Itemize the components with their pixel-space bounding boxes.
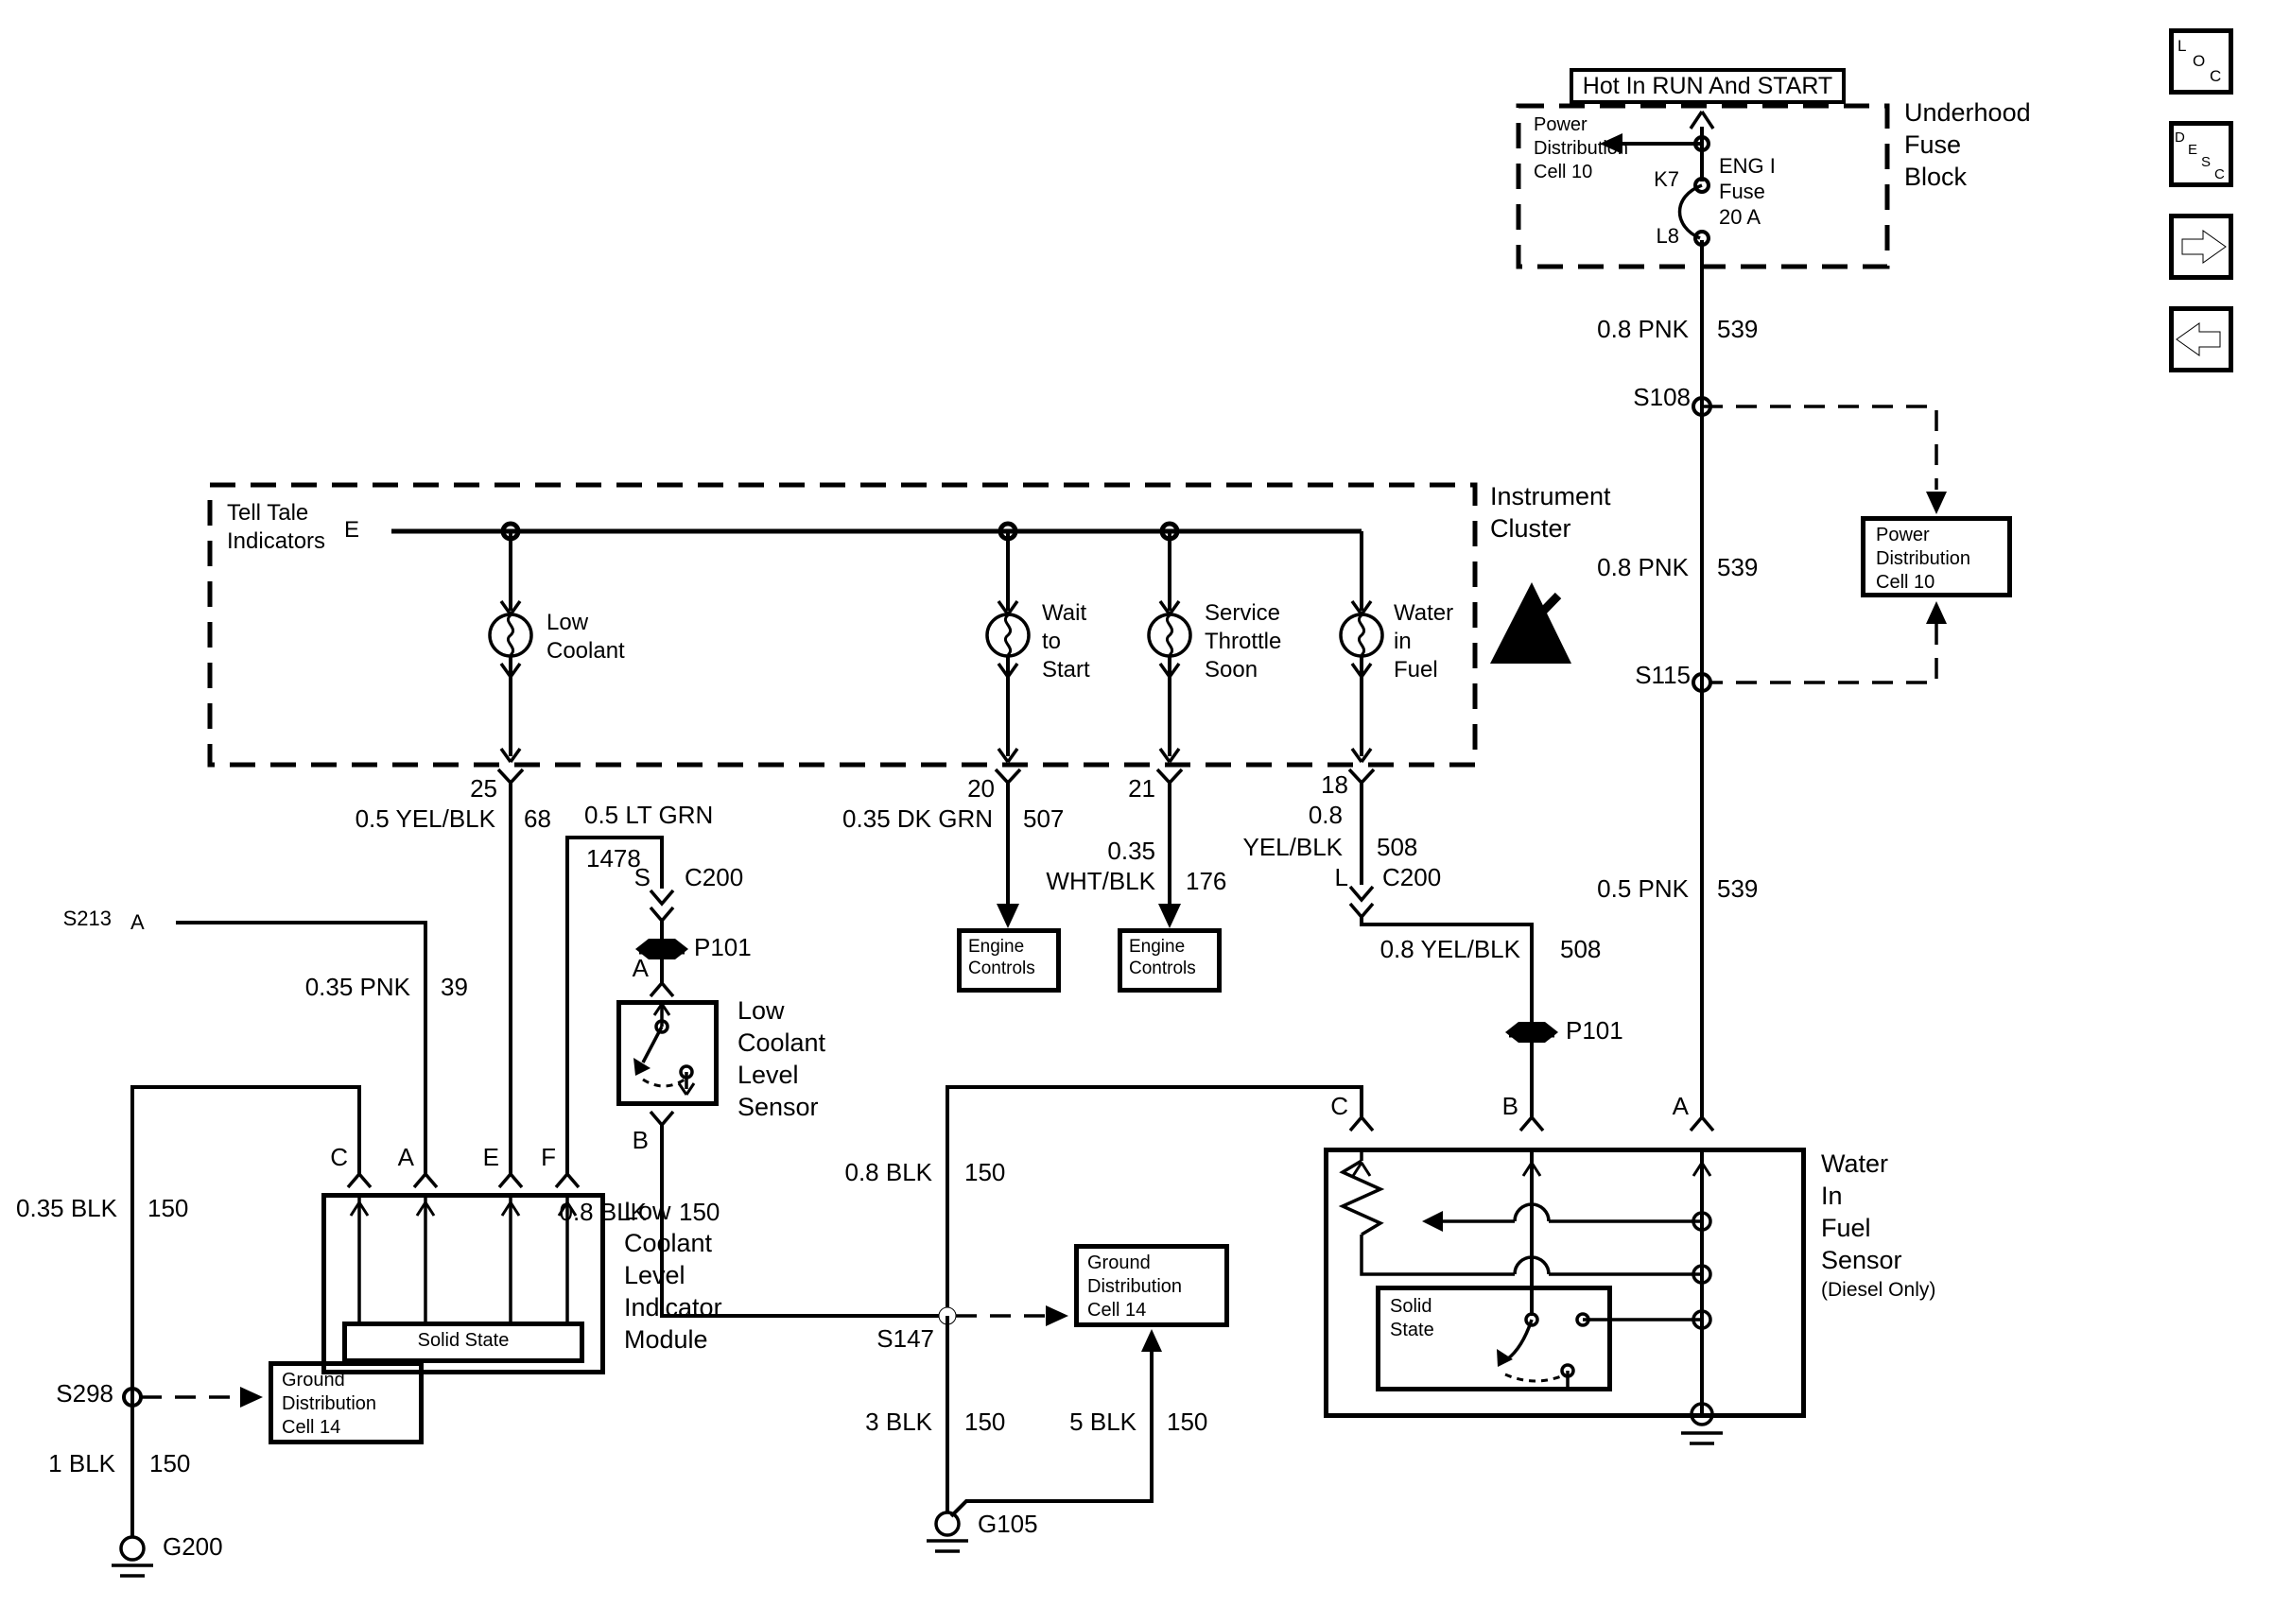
s213-gate-icon xyxy=(121,896,176,949)
wif-pin-a: A xyxy=(1673,1091,1689,1121)
wait-to-start-lamp-icon xyxy=(987,531,1029,783)
wire-150e-color: 3 BLK xyxy=(865,1407,932,1437)
loc-letter-o: O xyxy=(2193,53,2205,69)
wire-68-color: 0.5 YEL/BLK xyxy=(356,803,495,834)
splice-s298-label: S298 xyxy=(56,1378,113,1408)
wire-pnk-39 xyxy=(176,923,425,1174)
wire-508a-circuit: 508 xyxy=(1377,832,1417,862)
grommet-p101-b-label: P101 xyxy=(1566,1015,1623,1045)
fuse-terminal-l8: L8 xyxy=(1657,223,1679,249)
module-pin-e: E xyxy=(483,1142,499,1172)
splice-s147-dashed-link xyxy=(956,1305,1068,1326)
cluster-pin-18: 18 xyxy=(1321,769,1348,800)
service-throttle-soon-lamp-icon xyxy=(1149,531,1190,783)
grommet-p101-b-icon xyxy=(1505,1022,1558,1043)
module-solid-state-label: Solid State xyxy=(342,1329,584,1353)
lcl-sensor-pin-a: A xyxy=(633,953,649,983)
wire-508b-circuit: 508 xyxy=(1560,934,1601,964)
wire-21-wht-blk-176 xyxy=(1158,783,1181,928)
lcl-module-label: Low Coolant Level Indicator Module xyxy=(624,1195,722,1356)
power-distribution-cell10-label: Power Distribution Cell 10 xyxy=(1876,524,1970,595)
cluster-pin-21: 21 xyxy=(1128,773,1155,803)
water-in-fuel-lamp-icon xyxy=(1341,531,1382,783)
wire-176-circuit: 176 xyxy=(1186,866,1226,896)
wire-39-color: 0.35 PNK xyxy=(305,972,410,1002)
connector-c200l-pin: L xyxy=(1335,862,1348,892)
back-button[interactable] xyxy=(2169,306,2233,372)
ground-g105-label: G105 xyxy=(978,1509,1038,1539)
loc-letter-c: C xyxy=(2210,68,2221,84)
connector-c200s-name: C200 xyxy=(685,862,743,892)
connector-c200l-name: C200 xyxy=(1382,862,1441,892)
wire-150e-circuit: 150 xyxy=(964,1407,1005,1437)
wire-176-color2: WHT/BLK xyxy=(1046,866,1155,896)
splice-s147-label: S147 xyxy=(876,1323,934,1354)
wire-507-circuit: 507 xyxy=(1023,803,1064,834)
telltale-indicators-label: Tell Tale Indicators xyxy=(227,499,325,556)
wire-539c-color: 0.5 PNK xyxy=(1597,873,1689,904)
cluster-pin-25: 25 xyxy=(470,773,497,803)
grommet-p101-a-label: P101 xyxy=(694,932,752,962)
wire-508a-color1: 0.8 xyxy=(1309,800,1343,830)
wire-508a-color2: YEL/BLK xyxy=(1242,832,1343,862)
wire-539c-circuit: 539 xyxy=(1717,873,1758,904)
wire-1478-color: 0.5 LT GRN xyxy=(584,800,713,830)
wire-150c-circuit: 150 xyxy=(964,1157,1005,1187)
fuse-label: ENG I Fuse 20 A xyxy=(1719,153,1776,230)
splice-s108-dashed-link xyxy=(1702,406,1947,514)
cluster-pin-20: 20 xyxy=(967,773,995,803)
cluster-bus-wire xyxy=(391,524,1362,539)
wire-150d-circuit: 150 xyxy=(149,1448,190,1478)
low-coolant-lamp-label: Low Coolant xyxy=(547,609,625,665)
power-trunk-wire xyxy=(1693,240,1710,1117)
wif-pin-c: C xyxy=(1330,1091,1348,1121)
engine-controls-b-label: Engine Controls xyxy=(1129,936,1196,979)
ground-g105-icon xyxy=(927,1512,968,1551)
fuse-terminal-k7: K7 xyxy=(1654,166,1679,192)
wire-150a-color: 0.35 BLK xyxy=(16,1193,117,1223)
wire-507-color: 0.35 DK GRN xyxy=(842,803,993,834)
service-throttle-soon-lamp-label: Service Throttle Soon xyxy=(1205,599,1281,684)
desc-letter-s: S xyxy=(2201,155,2211,169)
ground-distribution-a-label: Ground Distribution Cell 14 xyxy=(282,1369,376,1440)
wif-sensor-label: Water In Fuel Sensor xyxy=(1821,1148,1902,1276)
esd-sensitive-icon xyxy=(1490,582,1571,664)
engine-controls-a-label: Engine Controls xyxy=(968,936,1035,979)
module-pin-f: F xyxy=(541,1142,556,1172)
wire-20-dk-grn-507 xyxy=(997,783,1019,928)
wait-to-start-lamp-label: Wait to Start xyxy=(1042,599,1090,684)
connector-c200s-pin: S xyxy=(634,862,651,892)
wif-sensor-sublabel: (Diesel Only) xyxy=(1821,1278,1935,1303)
instrument-cluster-outline xyxy=(210,485,1475,765)
forward-button[interactable] xyxy=(2169,214,2233,280)
desc-letter-c: C xyxy=(2214,167,2225,181)
telltale-gate-letter: E xyxy=(344,516,359,544)
water-in-fuel-lamp-label: Water in Fuel xyxy=(1394,599,1453,684)
wire-539a-circuit: 539 xyxy=(1717,314,1758,344)
ground-distribution-b-label: Ground Distribution Cell 14 xyxy=(1087,1252,1182,1322)
wire-39-circuit: 39 xyxy=(441,972,468,1002)
loc-letter-l: L xyxy=(2178,38,2186,54)
wire-508b-color: 0.8 YEL/BLK xyxy=(1380,934,1520,964)
wire-150f-circuit: 150 xyxy=(1167,1407,1207,1437)
ground-g200-label: G200 xyxy=(163,1531,223,1562)
wire-150d-color: 1 BLK xyxy=(48,1448,115,1478)
desc-letter-d: D xyxy=(2175,130,2185,145)
wire-176-color1: 0.35 xyxy=(1107,836,1155,866)
lcl-sensor-label: Low Coolant Level Sensor xyxy=(737,994,825,1123)
underhood-fuse-block-label: Underhood Fuse Block xyxy=(1904,96,2031,193)
wiring-diagram-page: Hot In RUN And START Power Distribution … xyxy=(0,0,2273,1624)
splice-s115-label: S115 xyxy=(1635,660,1691,690)
wire-150a-circuit: 150 xyxy=(147,1193,188,1223)
instrument-cluster-label: Instrument Cluster xyxy=(1490,480,1611,544)
ground-g200-icon xyxy=(112,1537,153,1576)
lcl-sensor-pin-b: B xyxy=(633,1125,649,1155)
wire-539b-color: 0.8 PNK xyxy=(1597,552,1689,582)
low-coolant-lamp-icon xyxy=(490,531,531,783)
banner-text: Hot In RUN And START xyxy=(1570,72,1846,100)
desc-letter-e: E xyxy=(2188,143,2197,157)
splice-s298-dashed-link xyxy=(141,1387,263,1408)
splice-s213-label: S213 xyxy=(63,906,112,931)
wif-pin-b: B xyxy=(1502,1091,1518,1121)
lcl-sensor-box xyxy=(616,1000,719,1106)
wire-539b-circuit: 539 xyxy=(1717,552,1758,582)
wire-150f-color: 5 BLK xyxy=(1069,1407,1136,1437)
module-pin-c: C xyxy=(330,1142,348,1172)
wire-150c-color: 0.8 BLK xyxy=(844,1157,932,1187)
module-pin-a: A xyxy=(398,1142,414,1172)
splice-s108-label: S108 xyxy=(1633,382,1691,412)
wire-68-circuit: 68 xyxy=(524,803,551,834)
splice-s115-dashed-link xyxy=(1710,601,1947,682)
fuse-pdc-label: Power Distribution Cell 10 xyxy=(1534,113,1628,184)
s213-gate-letter: A xyxy=(130,909,145,935)
wire-539a-color: 0.8 PNK xyxy=(1597,314,1689,344)
wif-solid-state-label: Solid State xyxy=(1390,1295,1434,1342)
wire-1478-circuit: 1478 xyxy=(586,843,641,873)
